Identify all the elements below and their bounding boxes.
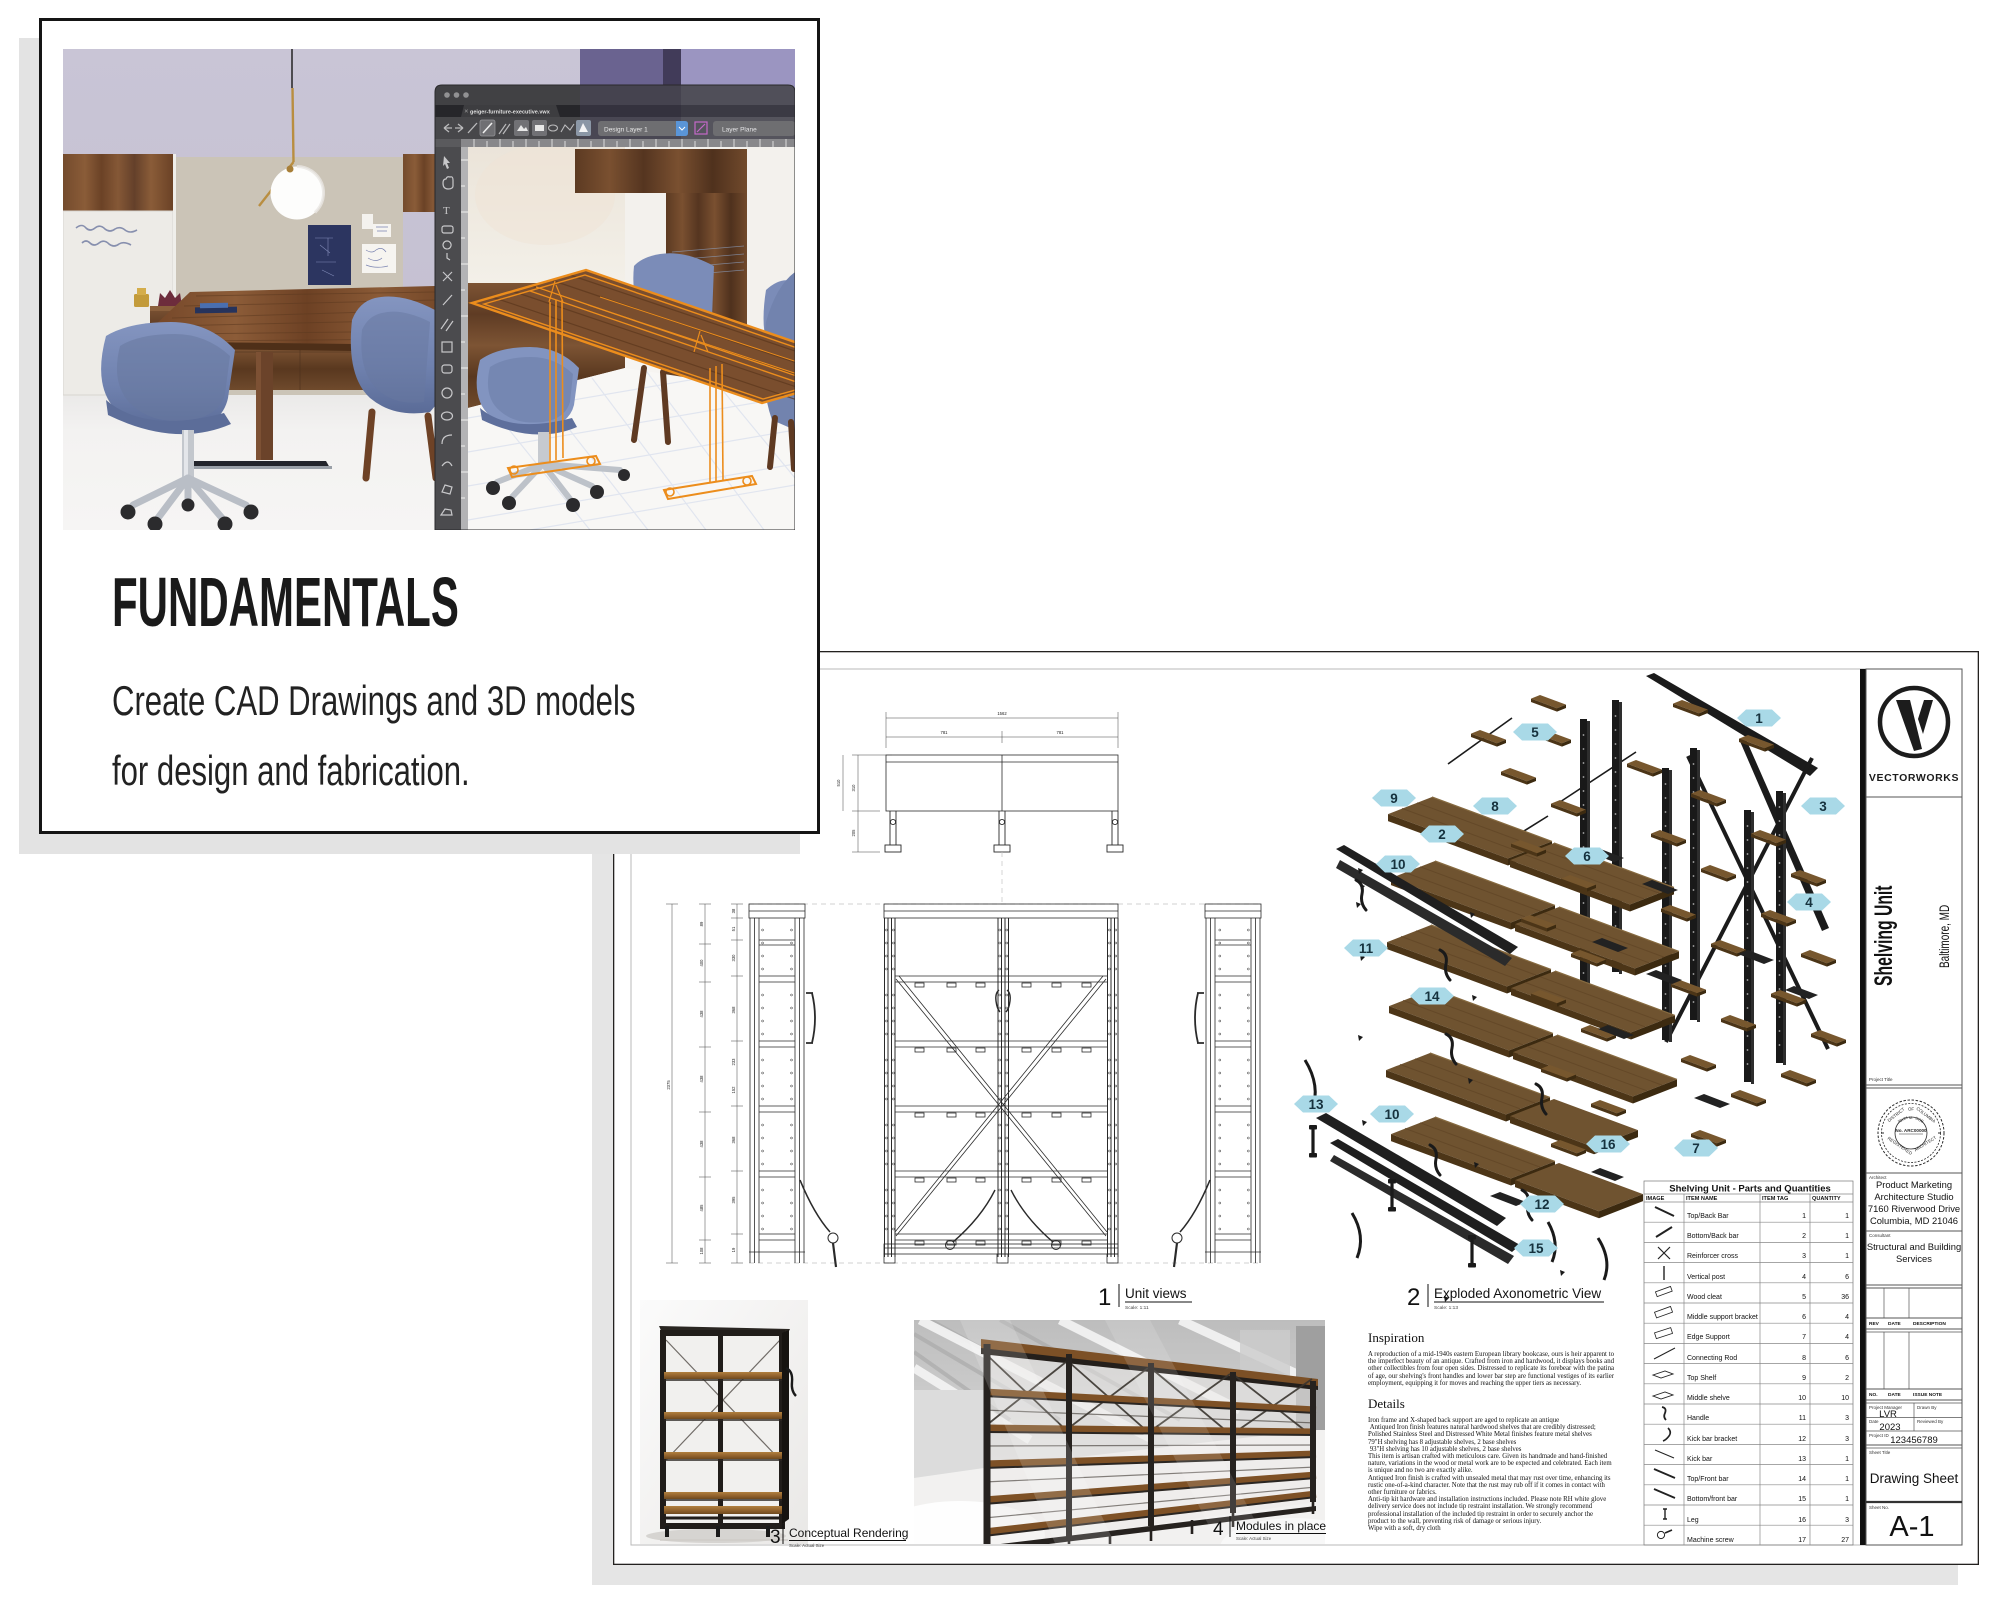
svg-text:M.: M.	[1909, 1115, 1913, 1120]
svg-text:geiger-furniture-executive.vwx: geiger-furniture-executive.vwx	[470, 110, 551, 116]
svg-text:Edge Support: Edge Support	[1687, 1334, 1730, 1341]
svg-text:3: 3	[1845, 1517, 1849, 1524]
svg-text:QUANTITY: QUANTITY	[1812, 1196, 1841, 1202]
svg-text:1: 1	[1802, 1213, 1806, 1220]
svg-text:6: 6	[1845, 1355, 1849, 1362]
svg-text:1: 1	[1845, 1213, 1849, 1220]
svg-text:Leg: Leg	[1687, 1517, 1699, 1524]
svg-text:Shelving Unit - Parts and Quan: Shelving Unit - Parts and Quantities	[1669, 1184, 1831, 1195]
svg-text:Reinforcer cross: Reinforcer cross	[1687, 1253, 1738, 1260]
svg-text:14: 14	[1424, 989, 1440, 1004]
svg-text:11: 11	[1799, 1415, 1806, 1422]
svg-text:DATE: DATE	[1888, 1392, 1902, 1398]
svg-text:205: 205	[851, 829, 856, 837]
svg-text:7160 Riverwood Drive: 7160 Riverwood Drive	[1868, 1203, 1960, 1214]
svg-text:510: 510	[836, 779, 841, 787]
svg-text:Connecting Rod: Connecting Rod	[1687, 1355, 1737, 1362]
svg-text:15: 15	[1528, 1241, 1544, 1256]
svg-text:3: 3	[1845, 1415, 1849, 1422]
svg-text:Design Layer 1: Design Layer 1	[604, 127, 648, 134]
svg-text:9: 9	[1802, 1375, 1806, 1382]
svg-text:395: 395	[731, 1196, 736, 1204]
svg-text:10: 10	[1384, 1107, 1399, 1122]
svg-text:123456789: 123456789	[1890, 1435, 1938, 1446]
svg-text:Sheet Title: Sheet Title	[1869, 1450, 1891, 1455]
svg-text:12: 12	[1534, 1197, 1549, 1212]
svg-text:Drawing Sheet: Drawing Sheet	[1870, 1471, 1959, 1486]
svg-text:A-1: A-1	[1889, 1511, 1934, 1543]
svg-text:310: 310	[851, 784, 856, 792]
svg-text:14: 14	[1798, 1476, 1806, 1483]
svg-text:✕: ✕	[464, 109, 469, 115]
svg-text:LVR: LVR	[1879, 1409, 1897, 1420]
svg-text:Top/Front bar: Top/Front bar	[1687, 1476, 1729, 1483]
svg-text:8: 8	[1491, 799, 1499, 814]
svg-text:7: 7	[1802, 1334, 1806, 1341]
svg-text:Top Shelf: Top Shelf	[1687, 1375, 1716, 1382]
svg-text:Baltimore, MD: Baltimore, MD	[1936, 905, 1952, 968]
svg-text:10: 10	[1798, 1395, 1806, 1402]
svg-text:19: 19	[731, 1247, 736, 1252]
svg-text:51: 51	[731, 926, 736, 931]
svg-text:Middle shelve: Middle shelve	[1687, 1395, 1730, 1402]
svg-text:12: 12	[1798, 1436, 1806, 1443]
svg-text:438: 438	[699, 1140, 704, 1148]
svg-text:6: 6	[1802, 1314, 1806, 1321]
svg-text:Consultant: Consultant	[1869, 1233, 1891, 1238]
svg-text:2: 2	[1407, 1284, 1420, 1311]
svg-text:Columbia, MD 21046: Columbia, MD 21046	[1870, 1215, 1958, 1226]
svg-text:REV: REV	[1869, 1321, 1880, 1327]
svg-text:1: 1	[1845, 1233, 1849, 1240]
svg-text:27: 27	[1841, 1537, 1849, 1544]
svg-text:Layer Plane: Layer Plane	[722, 127, 757, 134]
svg-text:16: 16	[1600, 1137, 1616, 1152]
svg-text:438: 438	[699, 1075, 704, 1083]
svg-text:17: 17	[1798, 1537, 1806, 1544]
svg-text:ITEM TAG: ITEM TAG	[1762, 1196, 1788, 1202]
svg-text:ITEM NAME: ITEM NAME	[1686, 1196, 1718, 1202]
svg-text:Scale: Actual Size: Scale: Actual Size	[789, 1543, 825, 1548]
svg-text:3: 3	[1845, 1436, 1849, 1443]
svg-text:36: 36	[1841, 1294, 1849, 1301]
svg-text:No. ARC00000: No. ARC00000	[1895, 1128, 1927, 1133]
svg-text:DESCRIPTION: DESCRIPTION	[1913, 1321, 1946, 1327]
svg-text:3: 3	[770, 1527, 781, 1548]
svg-text:15: 15	[1798, 1496, 1806, 1503]
svg-text:5: 5	[1802, 1294, 1806, 1301]
svg-text:1: 1	[1845, 1253, 1849, 1260]
svg-text:Product Marketing: Product Marketing	[1876, 1179, 1952, 1190]
svg-text:Kick bar: Kick bar	[1687, 1456, 1713, 1463]
svg-text:4: 4	[1805, 895, 1813, 910]
svg-text:Sheet No.: Sheet No.	[1869, 1505, 1889, 1510]
svg-text:Project ID: Project ID	[1869, 1433, 1890, 1438]
svg-text:Bottom/Back bar: Bottom/Back bar	[1687, 1233, 1739, 1240]
svg-text:3: 3	[1819, 799, 1827, 814]
svg-text:Scale: 1:11: Scale: 1:11	[1125, 1305, 1149, 1311]
svg-text:Architecture Studio: Architecture Studio	[1874, 1191, 1953, 1202]
svg-text:330: 330	[731, 954, 736, 962]
svg-text:Handle: Handle	[1687, 1415, 1709, 1422]
svg-text:1: 1	[1755, 711, 1763, 726]
svg-text:Drawn By: Drawn By	[1917, 1405, 1937, 1410]
svg-text:8: 8	[1802, 1355, 1806, 1362]
svg-text:Kick bar bracket: Kick bar bracket	[1687, 1436, 1737, 1443]
svg-text:108: 108	[699, 1247, 704, 1255]
svg-text:Date: Date	[1869, 1419, 1879, 1424]
svg-text:Project Title: Project Title	[1869, 1077, 1893, 1082]
svg-text:2: 2	[1438, 827, 1446, 842]
svg-text:2: 2	[1845, 1375, 1849, 1382]
svg-text:ISSUE NOTE: ISSUE NOTE	[1913, 1392, 1943, 1398]
svg-text:Services: Services	[1896, 1253, 1932, 1264]
svg-text:1: 1	[1845, 1456, 1849, 1463]
svg-text:Middle support bracket: Middle support bracket	[1687, 1314, 1758, 1321]
svg-text:2: 2	[1802, 1233, 1806, 1240]
svg-text:368: 368	[731, 1136, 736, 1144]
svg-text:Scale: Actual Size: Scale: Actual Size	[1236, 1536, 1272, 1541]
svg-text:400: 400	[699, 959, 704, 967]
svg-text:Shelving Unit: Shelving Unit	[1870, 885, 1898, 986]
svg-text:OF: OF	[1908, 1107, 1914, 1112]
svg-text:3: 3	[1802, 1253, 1806, 1260]
svg-text:10: 10	[1390, 857, 1405, 872]
svg-text:13: 13	[1798, 1456, 1806, 1463]
svg-text:5: 5	[1531, 725, 1539, 740]
svg-text:4: 4	[1845, 1314, 1849, 1321]
svg-text:T: T	[443, 205, 450, 217]
svg-text:89: 89	[699, 921, 704, 926]
svg-text:NO.: NO.	[1869, 1392, 1878, 1398]
svg-text:Unit views: Unit views	[1125, 1286, 1187, 1301]
svg-text:Bottom/front bar: Bottom/front bar	[1687, 1496, 1738, 1503]
svg-text:Structural and Building: Structural and Building	[1867, 1241, 1961, 1252]
svg-text:1: 1	[1098, 1284, 1111, 1311]
svg-text:Conceptual Rendering: Conceptual Rendering	[789, 1526, 908, 1540]
svg-text:1: 1	[1845, 1476, 1849, 1483]
svg-text:Machine screw: Machine screw	[1687, 1537, 1735, 1544]
svg-text:38: 38	[731, 908, 736, 913]
svg-text:13: 13	[1308, 1097, 1324, 1112]
svg-text:DATE: DATE	[1888, 1321, 1902, 1327]
svg-text:1562: 1562	[997, 711, 1007, 716]
svg-text:Wood cleat: Wood cleat	[1687, 1294, 1722, 1301]
svg-text:4: 4	[1213, 1519, 1224, 1540]
svg-text:6: 6	[1583, 849, 1591, 864]
svg-text:10: 10	[1841, 1395, 1849, 1402]
svg-text:7: 7	[1692, 1141, 1700, 1156]
svg-text:2375: 2375	[666, 1080, 671, 1090]
svg-text:368: 368	[731, 1006, 736, 1014]
svg-text:152: 152	[731, 1086, 736, 1094]
svg-text:781: 781	[941, 730, 949, 735]
svg-text:781: 781	[1057, 730, 1065, 735]
svg-text:Modules in place: Modules in place	[1236, 1519, 1326, 1533]
svg-text:4: 4	[1802, 1274, 1806, 1281]
svg-text:16: 16	[1798, 1517, 1806, 1524]
svg-text:Top/Back Bar: Top/Back Bar	[1687, 1213, 1729, 1220]
svg-text:6: 6	[1845, 1274, 1849, 1281]
svg-text:438: 438	[699, 1010, 704, 1018]
svg-text:VECTORWORKS: VECTORWORKS	[1869, 772, 1959, 784]
svg-text:Vertical post: Vertical post	[1687, 1274, 1725, 1281]
svg-text:9: 9	[1390, 791, 1398, 806]
svg-text:Reviewed By: Reviewed By	[1917, 1419, 1944, 1424]
svg-text:4: 4	[1845, 1334, 1849, 1341]
svg-text:233: 233	[731, 1058, 736, 1066]
svg-text:11: 11	[1359, 941, 1374, 956]
svg-text:485: 485	[699, 1204, 704, 1212]
svg-text:Scale: 1:13: Scale: 1:13	[1434, 1305, 1458, 1311]
svg-text:Exploded Axonometric View: Exploded Axonometric View	[1434, 1286, 1601, 1301]
svg-text:IMAGE: IMAGE	[1646, 1196, 1665, 1202]
svg-text:1: 1	[1845, 1496, 1849, 1503]
